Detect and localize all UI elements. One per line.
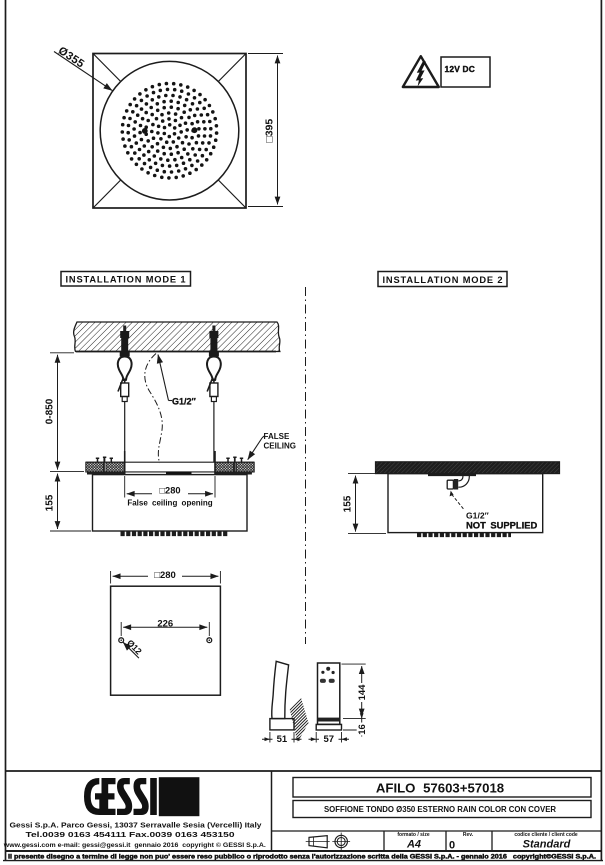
- svg-text:□395: □395: [264, 119, 276, 143]
- svg-text:155: 155: [45, 494, 56, 511]
- svg-text:FALSE: FALSE: [264, 432, 290, 441]
- svg-text:Il presente disegno a termine: Il presente disegno a termine di legge n…: [8, 854, 596, 861]
- svg-text:□280: □280: [154, 570, 176, 581]
- svg-text:Rev.: Rev.: [463, 832, 474, 838]
- svg-text:Gessi S.p.A. Parco Gessi, 1303: Gessi S.p.A. Parco Gessi, 13037 Serraval…: [10, 820, 263, 829]
- svg-text:12V DC: 12V DC: [445, 64, 476, 74]
- svg-text:INSTALLATION MODE 1: INSTALLATION MODE 1: [66, 275, 186, 285]
- svg-text:G1/2″: G1/2″: [172, 396, 197, 406]
- svg-text:INSTALLATION MODE 2: INSTALLATION MODE 2: [383, 275, 503, 285]
- svg-text:51: 51: [277, 734, 288, 745]
- svg-text:16: 16: [357, 724, 368, 735]
- svg-text:0: 0: [449, 840, 455, 852]
- svg-text:A4: A4: [406, 839, 421, 851]
- svg-text:False ceiling opening: False ceiling opening: [127, 499, 212, 508]
- svg-text:CEILING: CEILING: [264, 441, 296, 450]
- svg-text:NOT SUPPLIED: NOT SUPPLIED: [466, 520, 538, 531]
- svg-text:□280: □280: [159, 486, 180, 496]
- svg-text:Tel.0039 0163 454111 Fax.0039: Tel.0039 0163 454111 Fax.0039 0163 45315…: [26, 830, 235, 839]
- svg-text:144: 144: [357, 684, 368, 701]
- svg-text:www.gessi.com e-mail: gessi@ge: www.gessi.com e-mail: gessi@gessi.it gen…: [3, 841, 266, 849]
- svg-text:57: 57: [324, 734, 335, 745]
- svg-text:226: 226: [157, 618, 173, 629]
- svg-text:SOFFIONE TONDO Ø350 ESTERNO RA: SOFFIONE TONDO Ø350 ESTERNO RAIN COLOR C…: [324, 805, 556, 814]
- svg-text:AFILO 57603+57018: AFILO 57603+57018: [376, 780, 504, 795]
- svg-text:0-850: 0-850: [45, 398, 56, 424]
- svg-text:formato / size: formato / size: [397, 832, 429, 838]
- svg-text:155: 155: [343, 495, 354, 512]
- svg-text:Standard: Standard: [523, 839, 571, 851]
- svg-text:codice cliente / client code: codice cliente / client code: [514, 832, 578, 838]
